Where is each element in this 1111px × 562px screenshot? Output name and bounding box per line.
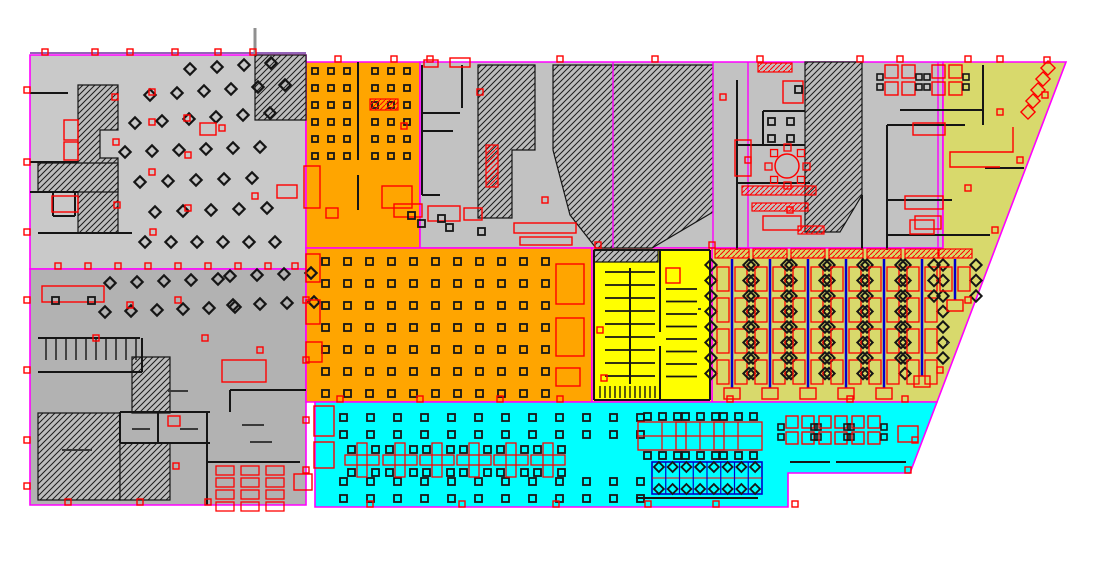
border-marker (792, 501, 798, 507)
hatch-left-bar (38, 163, 118, 192)
border-marker (24, 159, 30, 165)
room-label-micro (698, 308, 701, 310)
room-label-micro (242, 424, 264, 426)
floor-plan-canvas (0, 0, 1111, 562)
hatch-lower-a (38, 413, 120, 500)
hatch-right-1 (805, 62, 862, 232)
border-marker (757, 56, 763, 62)
red-hatched-cabinet (752, 203, 808, 211)
border-marker (335, 56, 341, 62)
border-marker (391, 56, 397, 62)
floor-plan-drawing (0, 0, 1111, 562)
hatch-center-2 (553, 65, 713, 248)
bench-cabinet (715, 249, 749, 258)
red-hatched-cabinet (798, 226, 824, 234)
border-marker (24, 367, 30, 373)
zone-orange-upper (306, 62, 420, 248)
border-marker (127, 49, 133, 55)
room-label-micro (180, 428, 198, 430)
bench-cabinet (829, 249, 863, 258)
room-label-micro (946, 342, 949, 344)
border-marker (215, 49, 221, 55)
red-hatched-cabinet (742, 186, 816, 195)
hatch-left-core (78, 85, 118, 233)
border-marker (652, 56, 658, 62)
hatch-lower-c (132, 357, 170, 413)
hatch-yellow-strip (594, 250, 658, 262)
room-label-micro (168, 390, 188, 392)
border-marker (557, 56, 563, 62)
border-marker (24, 483, 30, 489)
bench-cabinet (938, 249, 972, 258)
red-hatched-cabinet (486, 145, 498, 187)
border-marker (172, 49, 178, 55)
red-hatched-cabinet (370, 99, 398, 110)
border-marker (42, 49, 48, 55)
bench-cabinet (867, 249, 901, 258)
border-marker (897, 56, 903, 62)
bench-cabinet (791, 249, 825, 258)
bench-cabinet (753, 249, 787, 258)
bench-cabinet (905, 249, 939, 258)
red-hatched-cabinet (758, 63, 792, 72)
border-marker (965, 56, 971, 62)
room-label-micro (132, 428, 150, 430)
border-marker (24, 229, 30, 235)
border-marker (24, 297, 30, 303)
room-label-micro (250, 441, 272, 443)
border-marker (24, 87, 30, 93)
hatch-lower-b (120, 443, 170, 500)
border-marker (857, 56, 863, 62)
border-marker (427, 56, 433, 62)
border-marker (92, 49, 98, 55)
border-marker (24, 437, 30, 443)
room-label-micro (62, 449, 92, 451)
border-marker (997, 56, 1003, 62)
